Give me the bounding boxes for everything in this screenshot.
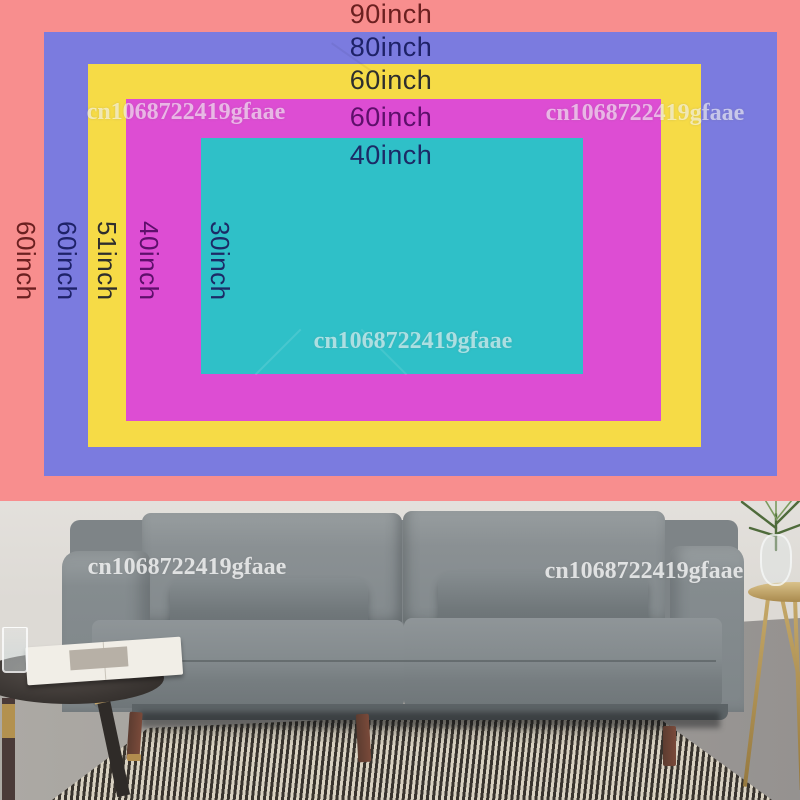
height-label-60inch: 60inch	[51, 221, 82, 301]
width-label-60inch: 60inch	[350, 65, 433, 96]
glass-vase	[760, 534, 792, 586]
product-size-mockup-image: 90inch 80inch 60inch 60inch 40inch 60inc…	[0, 0, 800, 800]
width-label-40inch: 40inch	[350, 140, 433, 171]
height-label-40inch: 40inch	[133, 221, 164, 301]
height-label-51inch: 51inch	[91, 221, 122, 301]
watermark: cn1068722419gfaae	[87, 99, 286, 126]
width-label-90inch: 90inch	[350, 0, 433, 30]
table-leg	[743, 598, 770, 787]
watermark: cn1068722419gfaae	[314, 328, 513, 355]
height-label-60inch: 60inch	[10, 221, 41, 301]
width-label-60inch: 60inch	[350, 102, 433, 133]
watermark: cn1068722419gfaae	[88, 554, 287, 581]
watermark: cn1068722419gfaae	[545, 558, 744, 585]
height-label-30inch: 30inch	[204, 221, 235, 301]
size-diagram: 90inch 80inch 60inch 60inch 40inch 60inc…	[0, 0, 800, 501]
table-leg	[793, 598, 800, 790]
width-label-80inch: 80inch	[350, 32, 433, 63]
watermark: cn1068722419gfaae	[546, 100, 745, 127]
